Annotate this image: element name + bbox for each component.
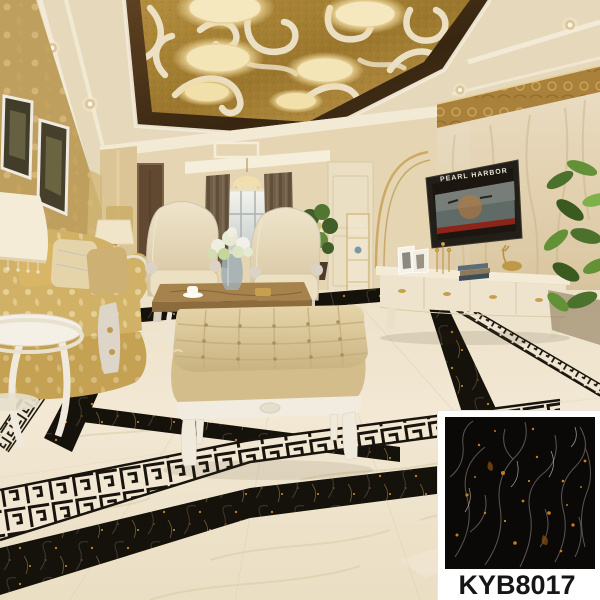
product-code-label: KYB8017 [438,570,596,600]
product-swatch-card: KYB8017 [437,410,600,600]
tile-ad-photo: PEARL HARBOR [0,0,600,600]
black-marble-tile [445,417,595,569]
product-tile-sample [445,417,595,569]
